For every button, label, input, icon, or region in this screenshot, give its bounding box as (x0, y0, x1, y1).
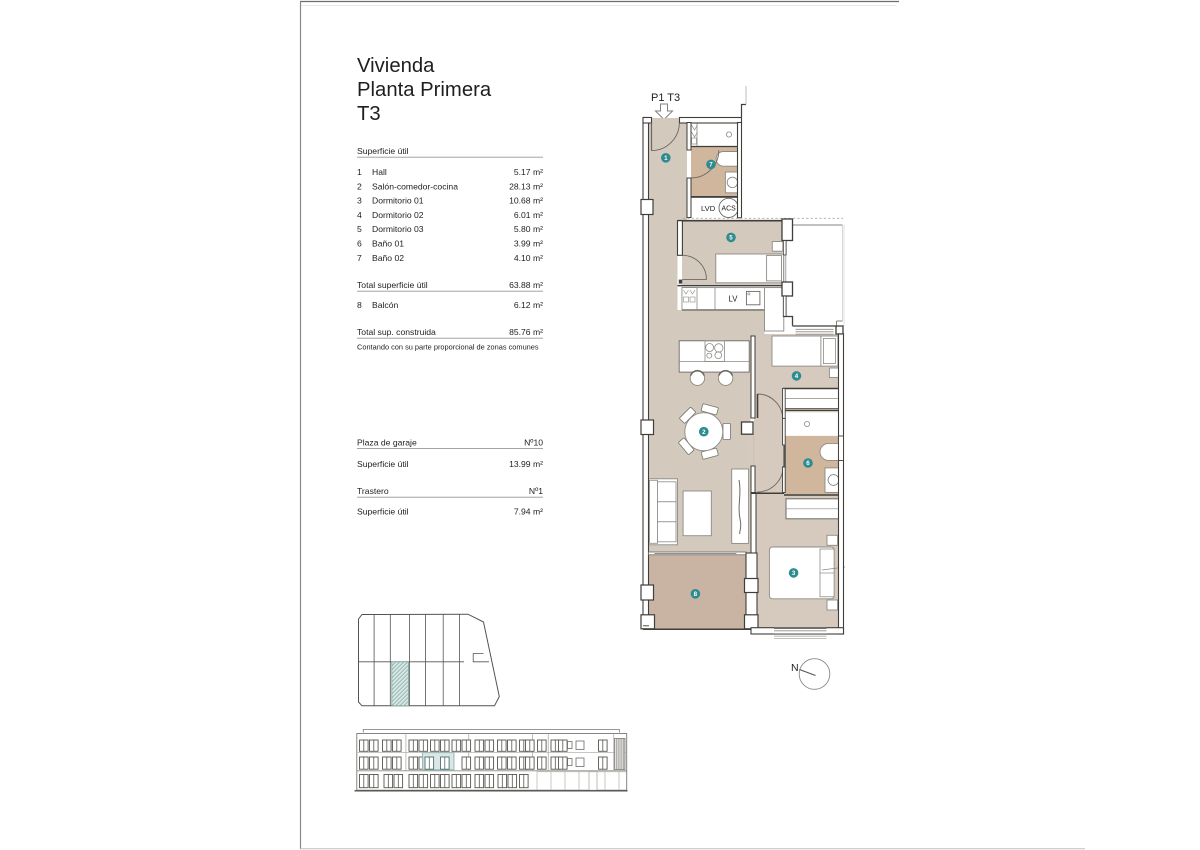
svg-text:7: 7 (709, 162, 713, 169)
svg-text:6.12 m²: 6.12 m² (514, 300, 543, 310)
svg-text:8: 8 (694, 591, 698, 598)
svg-text:6: 6 (806, 460, 810, 467)
svg-text:Contando con su parte proporci: Contando con su parte proporcional de zo… (357, 343, 539, 352)
svg-text:Superficie útil: Superficie útil (357, 459, 409, 469)
svg-text:1: 1 (664, 155, 668, 162)
svg-text:T3: T3 (357, 103, 381, 125)
svg-text:5: 5 (729, 235, 733, 242)
svg-text:Planta Primera: Planta Primera (357, 79, 492, 101)
svg-text:2: 2 (702, 429, 706, 436)
svg-text:Salón-comedor-cocina: Salón-comedor-cocina (372, 181, 458, 191)
svg-text:63.88 m²: 63.88 m² (509, 280, 543, 290)
svg-text:Hall: Hall (372, 167, 387, 177)
svg-text:Nº1: Nº1 (529, 486, 543, 496)
svg-text:85.76 m²: 85.76 m² (509, 327, 543, 337)
svg-text:4: 4 (795, 373, 799, 380)
svg-text:8: 8 (357, 300, 362, 310)
svg-text:Nº10: Nº10 (524, 438, 543, 448)
svg-text:5.80 m²: 5.80 m² (514, 224, 543, 234)
svg-text:4: 4 (357, 210, 362, 220)
svg-text:P1 T3: P1 T3 (651, 92, 680, 104)
svg-text:Balcón: Balcón (372, 300, 398, 310)
svg-text:Total sup. construida: Total sup. construida (357, 327, 436, 337)
svg-text:3.99 m²: 3.99 m² (514, 239, 543, 249)
svg-text:Baño 02: Baño 02 (372, 253, 404, 263)
svg-text:Total superficie útil: Total superficie útil (357, 280, 428, 290)
svg-text:1: 1 (357, 167, 362, 177)
svg-text:7.94 m²: 7.94 m² (514, 507, 543, 517)
svg-text:3: 3 (792, 570, 796, 577)
svg-text:7: 7 (357, 253, 362, 263)
svg-text:Superficie útil: Superficie útil (357, 146, 409, 156)
svg-text:Dormitorio 02: Dormitorio 02 (372, 210, 424, 220)
svg-text:28.13 m²: 28.13 m² (509, 181, 543, 191)
svg-text:2: 2 (357, 181, 362, 191)
svg-text:3: 3 (357, 196, 362, 206)
svg-text:Vivienda: Vivienda (357, 55, 435, 77)
svg-text:5: 5 (357, 224, 362, 234)
svg-text:5.17 m²: 5.17 m² (514, 167, 543, 177)
svg-text:LVD: LVD (701, 204, 716, 213)
svg-text:LV: LV (729, 295, 739, 304)
svg-text:13.99 m²: 13.99 m² (509, 459, 543, 469)
svg-text:Baño 01: Baño 01 (372, 239, 404, 249)
svg-text:10.68 m²: 10.68 m² (509, 196, 543, 206)
svg-text:6: 6 (357, 239, 362, 249)
svg-text:N: N (791, 662, 799, 674)
svg-text:6.01 m²: 6.01 m² (514, 210, 543, 220)
svg-text:Dormitorio 01: Dormitorio 01 (372, 196, 424, 206)
svg-text:Dormitorio 03: Dormitorio 03 (372, 224, 424, 234)
svg-text:Trastero: Trastero (357, 486, 389, 496)
svg-text:Superficie útil: Superficie útil (357, 507, 409, 517)
svg-text:ACS: ACS (722, 205, 737, 212)
svg-text:Plaza de garaje: Plaza de garaje (357, 438, 417, 448)
svg-text:4.10 m²: 4.10 m² (514, 253, 543, 263)
